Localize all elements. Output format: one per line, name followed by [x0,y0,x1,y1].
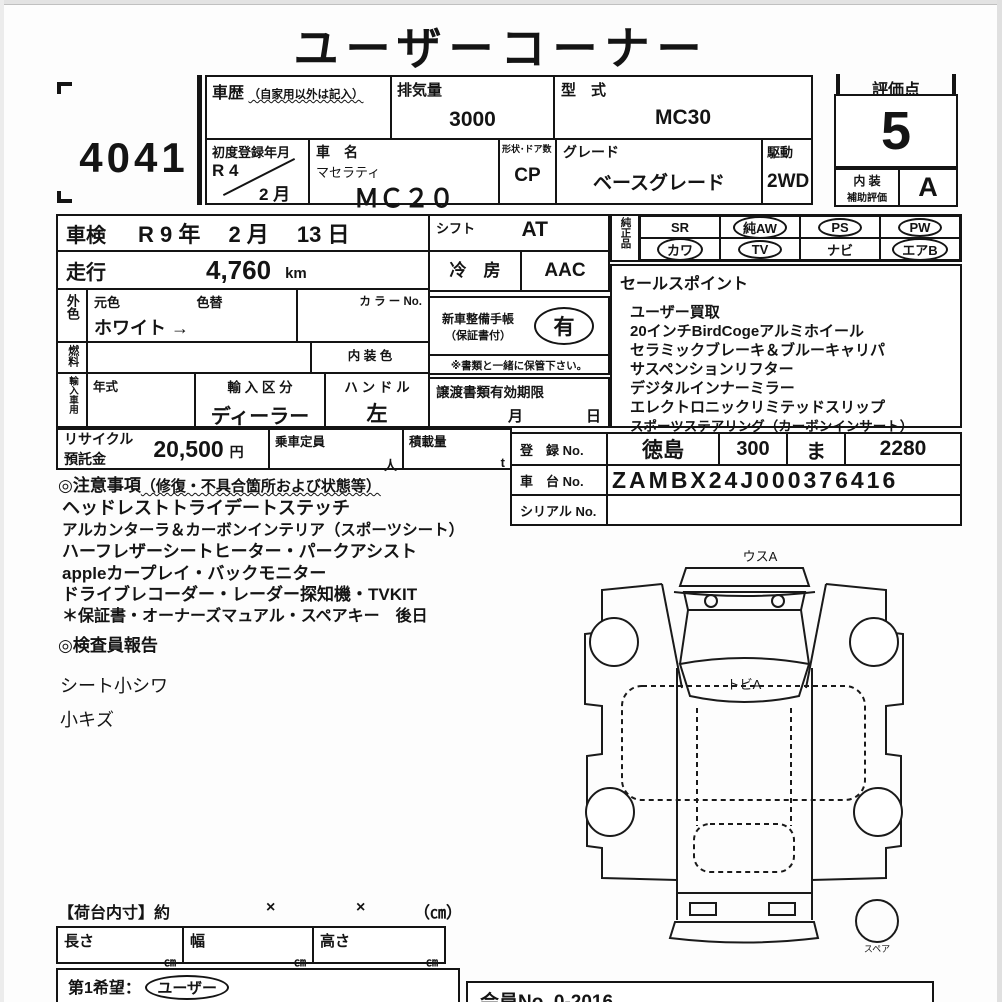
load-cell: 積載量 t [402,428,512,470]
exterior-color-label-cell: 外色 [56,288,88,343]
interior-color-cell: 内 装 色 [310,341,430,374]
lot-bracket-bottom [57,191,72,203]
shift-value: AT [521,218,547,241]
fuel-value-cell [86,341,312,374]
transfer-month: 月 [508,405,523,426]
lot-bracket-top [57,82,72,94]
base-color-label: 元色 [94,295,120,310]
sales-point-line: ユーザー買取 [630,303,952,322]
interior-score-cell: 内 装 補助評価 A [834,168,958,207]
cargo-x2: × [356,899,365,917]
record-note-cell: ※書類と一緒に保管下さい。 [428,354,610,375]
auction-sheet: ユーザーコーナー 4041 車歴 （自家用以外は記入） 排気量 3000 型 式… [0,0,1002,1002]
caution-line: ＊保証書・オーナーズマュアル・スペアキー 後日 [62,606,558,628]
model-year-cell: 年式 [86,372,196,428]
mileage-row: 走行 4,760 km [56,250,430,290]
color-no-cell: カ ラ ー No. [296,288,430,343]
color-no-label: カ ラ ー No. [359,296,422,308]
sales-point-line: エレクトロニックリミテッドスリップ [630,398,952,417]
grade-value: ベースグレード [563,168,755,195]
diagram-spare-label: スペア [864,944,890,954]
registration-class: 300 [736,438,769,461]
genuine-item-ps: PS [818,218,862,237]
wish-label: 第1希望： [68,980,141,997]
load-label: 積載量 [409,435,447,449]
genuine-parts-grid: SR 純AW PS PW カワ TV ナビ エアB [640,216,960,260]
cargo-length-cell: 長さ ㎝ [56,926,184,964]
cautions-heading-note: （修復・不具合箇所および状態等） [141,478,381,495]
page-title: ユーザーコーナー [0,12,1002,77]
caution-line: appleカープレイ・バックモニター [62,563,558,585]
drive-cell: 駆動 2WD [761,138,813,205]
grade-cell: グレード ベースグレード [555,138,763,205]
import-class-label: 輸 入 区 分 [201,376,319,396]
caution-line: ドライブレコーダー・レーダー探知機・TVKIT [62,584,558,606]
body-door-value: CP [502,165,553,187]
displacement-cell: 排気量 3000 [390,75,555,140]
car-name-label: 車 名 [316,144,358,160]
capacity-cell: 乗車定員 人 [268,428,404,470]
transfer-day: 日 [586,405,601,426]
aircon-cell: 冷 房 AAC [428,250,610,292]
record-book-cell: 新車整備手帳 （保証書付） 有 [428,296,610,356]
body-door-cell: 形状･ドア数 CP [498,138,557,205]
displacement-value: 3000 [397,108,548,132]
caution-line: アルカンターラ＆カーボンインテリア（スポーツシート） [62,520,558,542]
cargo-width-label: 幅 [190,933,205,950]
capacity-label: 乗車定員 [275,435,325,449]
recycle-label-2: 預託金 [64,449,133,469]
inspector-line: 小キズ [60,703,408,737]
genuine-item-pw: PW [898,218,942,237]
load-unit: t [409,455,505,470]
cargo-width-cell: 幅 ㎝ [182,926,314,964]
body-door-label: 形状･ドア数 [502,142,553,155]
fuel-label-cell: 燃料 [56,341,88,374]
shift-label: シフト [436,221,475,236]
history-note: （自家用以外は記入） [248,89,363,101]
scan-edge-top [0,0,1002,5]
handle-label: ハ ン ド ル [331,376,423,396]
inspector-section: ◎検査員報告 シート小シワ 小キズ [58,631,408,737]
transfer-cell: 譲渡書類有効期限 月 日 [428,377,610,428]
import-label: 輸入車用 [67,376,77,414]
wish-value: ユーザー [145,975,229,1000]
serial-row: シリアル No. [512,494,960,524]
exterior-color-cell: 元色 色替 ホワイト → [86,288,298,343]
cargo-x1: × [266,899,275,917]
grade-label: グレード [563,142,755,162]
fuel-label: 燃料 [66,345,78,367]
score-value: 5 [836,96,956,166]
score-box: 5 [834,94,958,168]
registration-label: 登 録 No. [520,440,584,459]
mileage-value: 4,760 [206,255,271,286]
scan-edge-left [0,0,4,1002]
sales-point-line: デジタルインナーミラー [630,379,952,398]
car-name-cell: 車 名 マセラティ ＭＣ２０ [308,138,500,205]
record-book-value: 有 [534,307,594,345]
genuine-item-tv: TV [738,240,782,259]
exterior-color-label: 外色 [65,294,79,320]
aircon-value: AAC [522,252,608,290]
model-code-value: MC30 [561,106,805,130]
sales-point-line: セラミックブレーキ＆ブルーキャリパ [630,341,952,360]
interior-score-label-2: 補助評価 [836,189,898,204]
diagram-windshield-label: トビA [727,677,762,692]
recycle-unit: 円 [230,442,244,462]
handle-value: 左 [331,398,423,428]
sales-points-box: セールスポイント ユーザー買取 20インチBirdCogeアルミホイール セラミ… [610,264,962,428]
record-note: ※書類と一緒に保管下さい。 [451,360,587,372]
mileage-unit: km [285,265,307,282]
interior-color-label: 内 装 色 [348,349,392,363]
model-code-label: 型 式 [561,79,805,100]
cargo-size-section: 【荷台内寸】約 × × （㎝） [58,899,458,921]
import-label-cell: 輸入車用 [56,372,88,428]
registration-area: 徳島 [642,434,684,464]
record-book-label-2: （保証書付） [430,327,526,343]
registration-box: 登 録 No. 徳島 300 ま 2280 車 台 No. ZAMBX24J00… [510,432,962,526]
record-book-label-1: 新車整備手帳 [430,310,526,327]
history-cell: 車歴 （自家用以外は記入） [205,75,392,140]
recycle-cell: リサイクル 預託金 20,500 円 [56,428,270,470]
history-label: 車歴 [212,85,244,102]
chassis-value: ZAMBX24J000376416 [612,467,898,494]
header-divider-bar [197,75,202,205]
car-damage-diagram: ウスA トビA [572,546,1002,958]
car-name-value: ＭＣ２０ [316,179,492,215]
first-registration-label: 初度登録年月 [212,142,303,161]
sales-point-line: 20インチBirdCogeアルミホイール [630,322,952,341]
caution-line: ハーフレザーシートヒーター・パークアシスト [62,541,558,563]
shaken-label: 車検 [66,219,106,248]
diagram-front-label: ウスA [743,549,778,564]
cautions-section: ◎注意事項（修復・不具合箇所および状態等） ヘッドレストトライデートステッチ ア… [58,471,558,627]
shaken-row: 車検 R 9 年 2 月 13 日 [56,214,430,252]
transfer-label: 譲渡書類有効期限 [436,381,602,401]
displacement-label: 排気量 [397,79,548,100]
caution-line: ヘッドレストトライデートステッチ [62,498,558,520]
recycle-label-1: リサイクル [64,429,133,449]
member-no: 会員No. 0-2016 [480,992,613,1002]
first-registration-month: 2 月 [259,180,290,205]
registration-row: 登 録 No. 徳島 300 ま 2280 [512,434,960,464]
import-class-cell: 輸 入 区 分 ディーラー [194,372,326,428]
wish-box: 第1希望： ユーザー [56,968,460,1002]
interior-score-value: A [900,170,956,205]
aircon-label: 冷 房 [430,252,522,290]
sales-point-line: サスペンションリフター [630,360,952,379]
genuine-item-kawa: カワ [657,238,703,261]
genuine-parts-box: 純正品 SR 純AW PS PW カワ TV ナビ エアB [610,214,962,262]
genuine-parts-label: 純正品 [619,217,630,249]
import-class-value: ディーラー [201,400,319,429]
cargo-height-cell: 高さ ㎝ [312,926,446,964]
shaken-value: R 9 年 2 月 13 日 [138,217,350,249]
model-year-label: 年式 [93,380,118,394]
sales-points-label: セールスポイント [620,270,952,294]
interior-score-label-1: 内 装 [836,172,898,189]
handle-cell: ハ ン ド ル 左 [324,372,430,428]
cautions-heading: ◎注意事項 [58,476,141,495]
genuine-item-navi: ナビ [827,240,853,259]
color-value: ホワイト → [94,314,290,340]
first-registration-cell: 初度登録年月 R 4 2 月 [205,138,310,205]
cargo-height-label: 高さ [320,933,350,950]
cargo-unit-note: （㎝） [414,899,462,923]
recycle-value: 20,500 [153,436,223,463]
cargo-length-label: 長さ [64,933,94,950]
lot-number: 4041 [78,134,190,182]
genuine-item-airb: エアB [892,238,947,261]
registration-kana: ま [806,435,826,464]
model-code-cell: 型 式 MC30 [553,75,813,140]
genuine-item-sr: SR [671,220,689,235]
genuine-item-aw: 純AW [733,216,787,239]
member-no-box: 会員No. 0-2016 [466,981,934,1002]
score-header-bar-right [952,74,956,96]
drive-label: 駆動 [767,142,807,161]
inspector-heading: ◎検査員報告 [58,631,408,656]
chassis-row: 車 台 No. ZAMBX24J000376416 [512,464,960,494]
shift-cell: シフト AT [428,214,610,252]
repaint-label: 色替 [196,295,222,310]
inspector-line: シート小シワ [60,669,408,703]
drive-value: 2WD [767,171,807,193]
mileage-label: 走行 [66,256,106,285]
registration-number: 2280 [880,437,927,461]
cargo-heading: 【荷台内寸】約 [58,899,170,923]
